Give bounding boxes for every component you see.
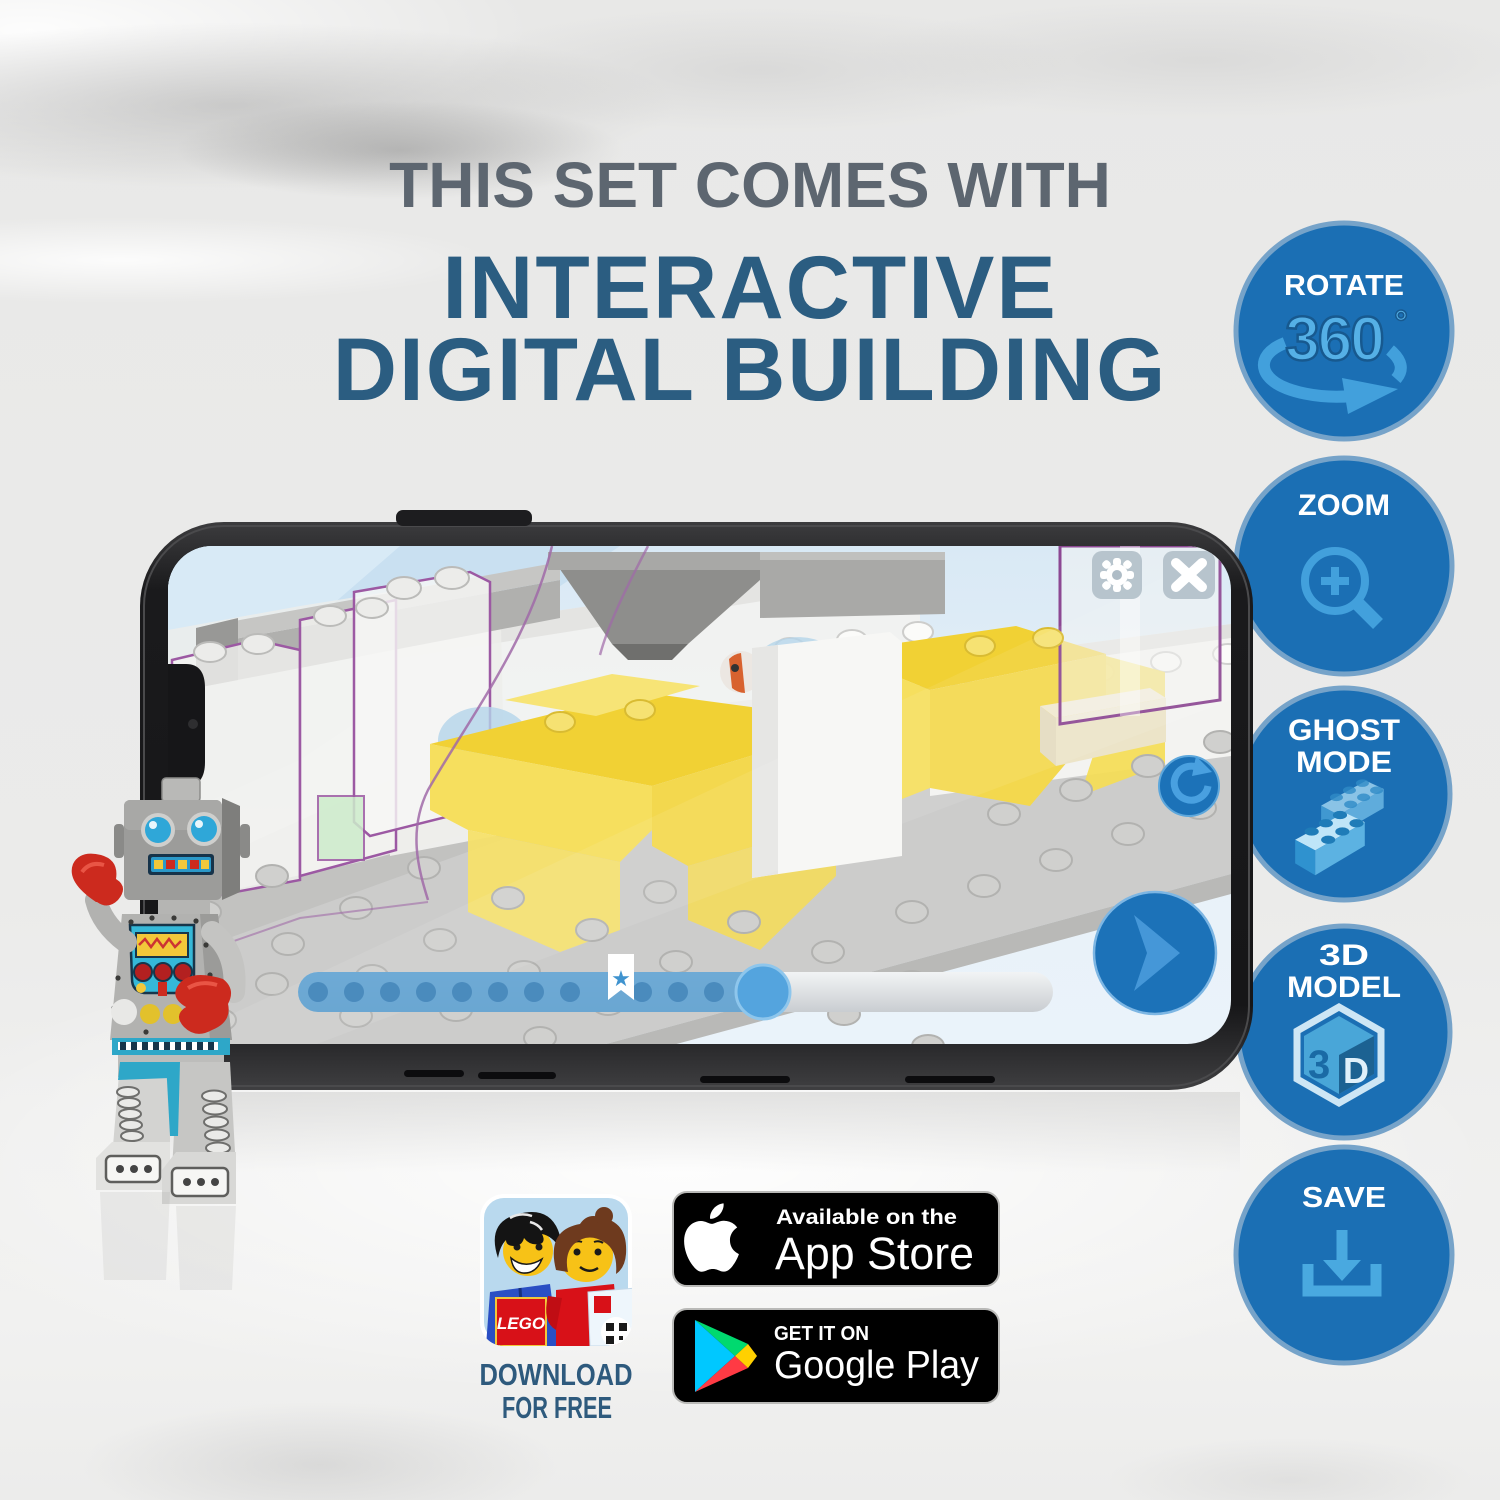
svg-text:FOR FREE: FOR FREE — [502, 1390, 612, 1425]
svg-text:3: 3 — [1308, 1043, 1330, 1087]
svg-text:Google Play: Google Play — [774, 1344, 979, 1387]
svg-text:ROTATE: ROTATE — [1284, 270, 1404, 302]
svg-text:SAVE: SAVE — [1302, 1182, 1386, 1214]
svg-text:D: D — [1343, 1050, 1369, 1091]
svg-text:360: 360 — [1285, 305, 1382, 374]
svg-text:Available on the: Available on the — [776, 1206, 957, 1229]
svg-text:°: ° — [1394, 304, 1408, 342]
svg-text:LEGO: LEGO — [497, 1314, 545, 1333]
svg-text:App Store: App Store — [775, 1228, 974, 1279]
svg-text:MODE: MODE — [1296, 746, 1392, 779]
svg-text:MODEL: MODEL — [1287, 971, 1401, 1004]
svg-text:ZOOM: ZOOM — [1298, 489, 1390, 522]
svg-text:★: ★ — [611, 966, 631, 991]
svg-text:GET IT ON: GET IT ON — [774, 1323, 869, 1345]
svg-text:DOWNLOAD: DOWNLOAD — [480, 1357, 633, 1392]
svg-text:GHOST: GHOST — [1288, 714, 1400, 747]
svg-text:3D: 3D — [1319, 939, 1369, 972]
